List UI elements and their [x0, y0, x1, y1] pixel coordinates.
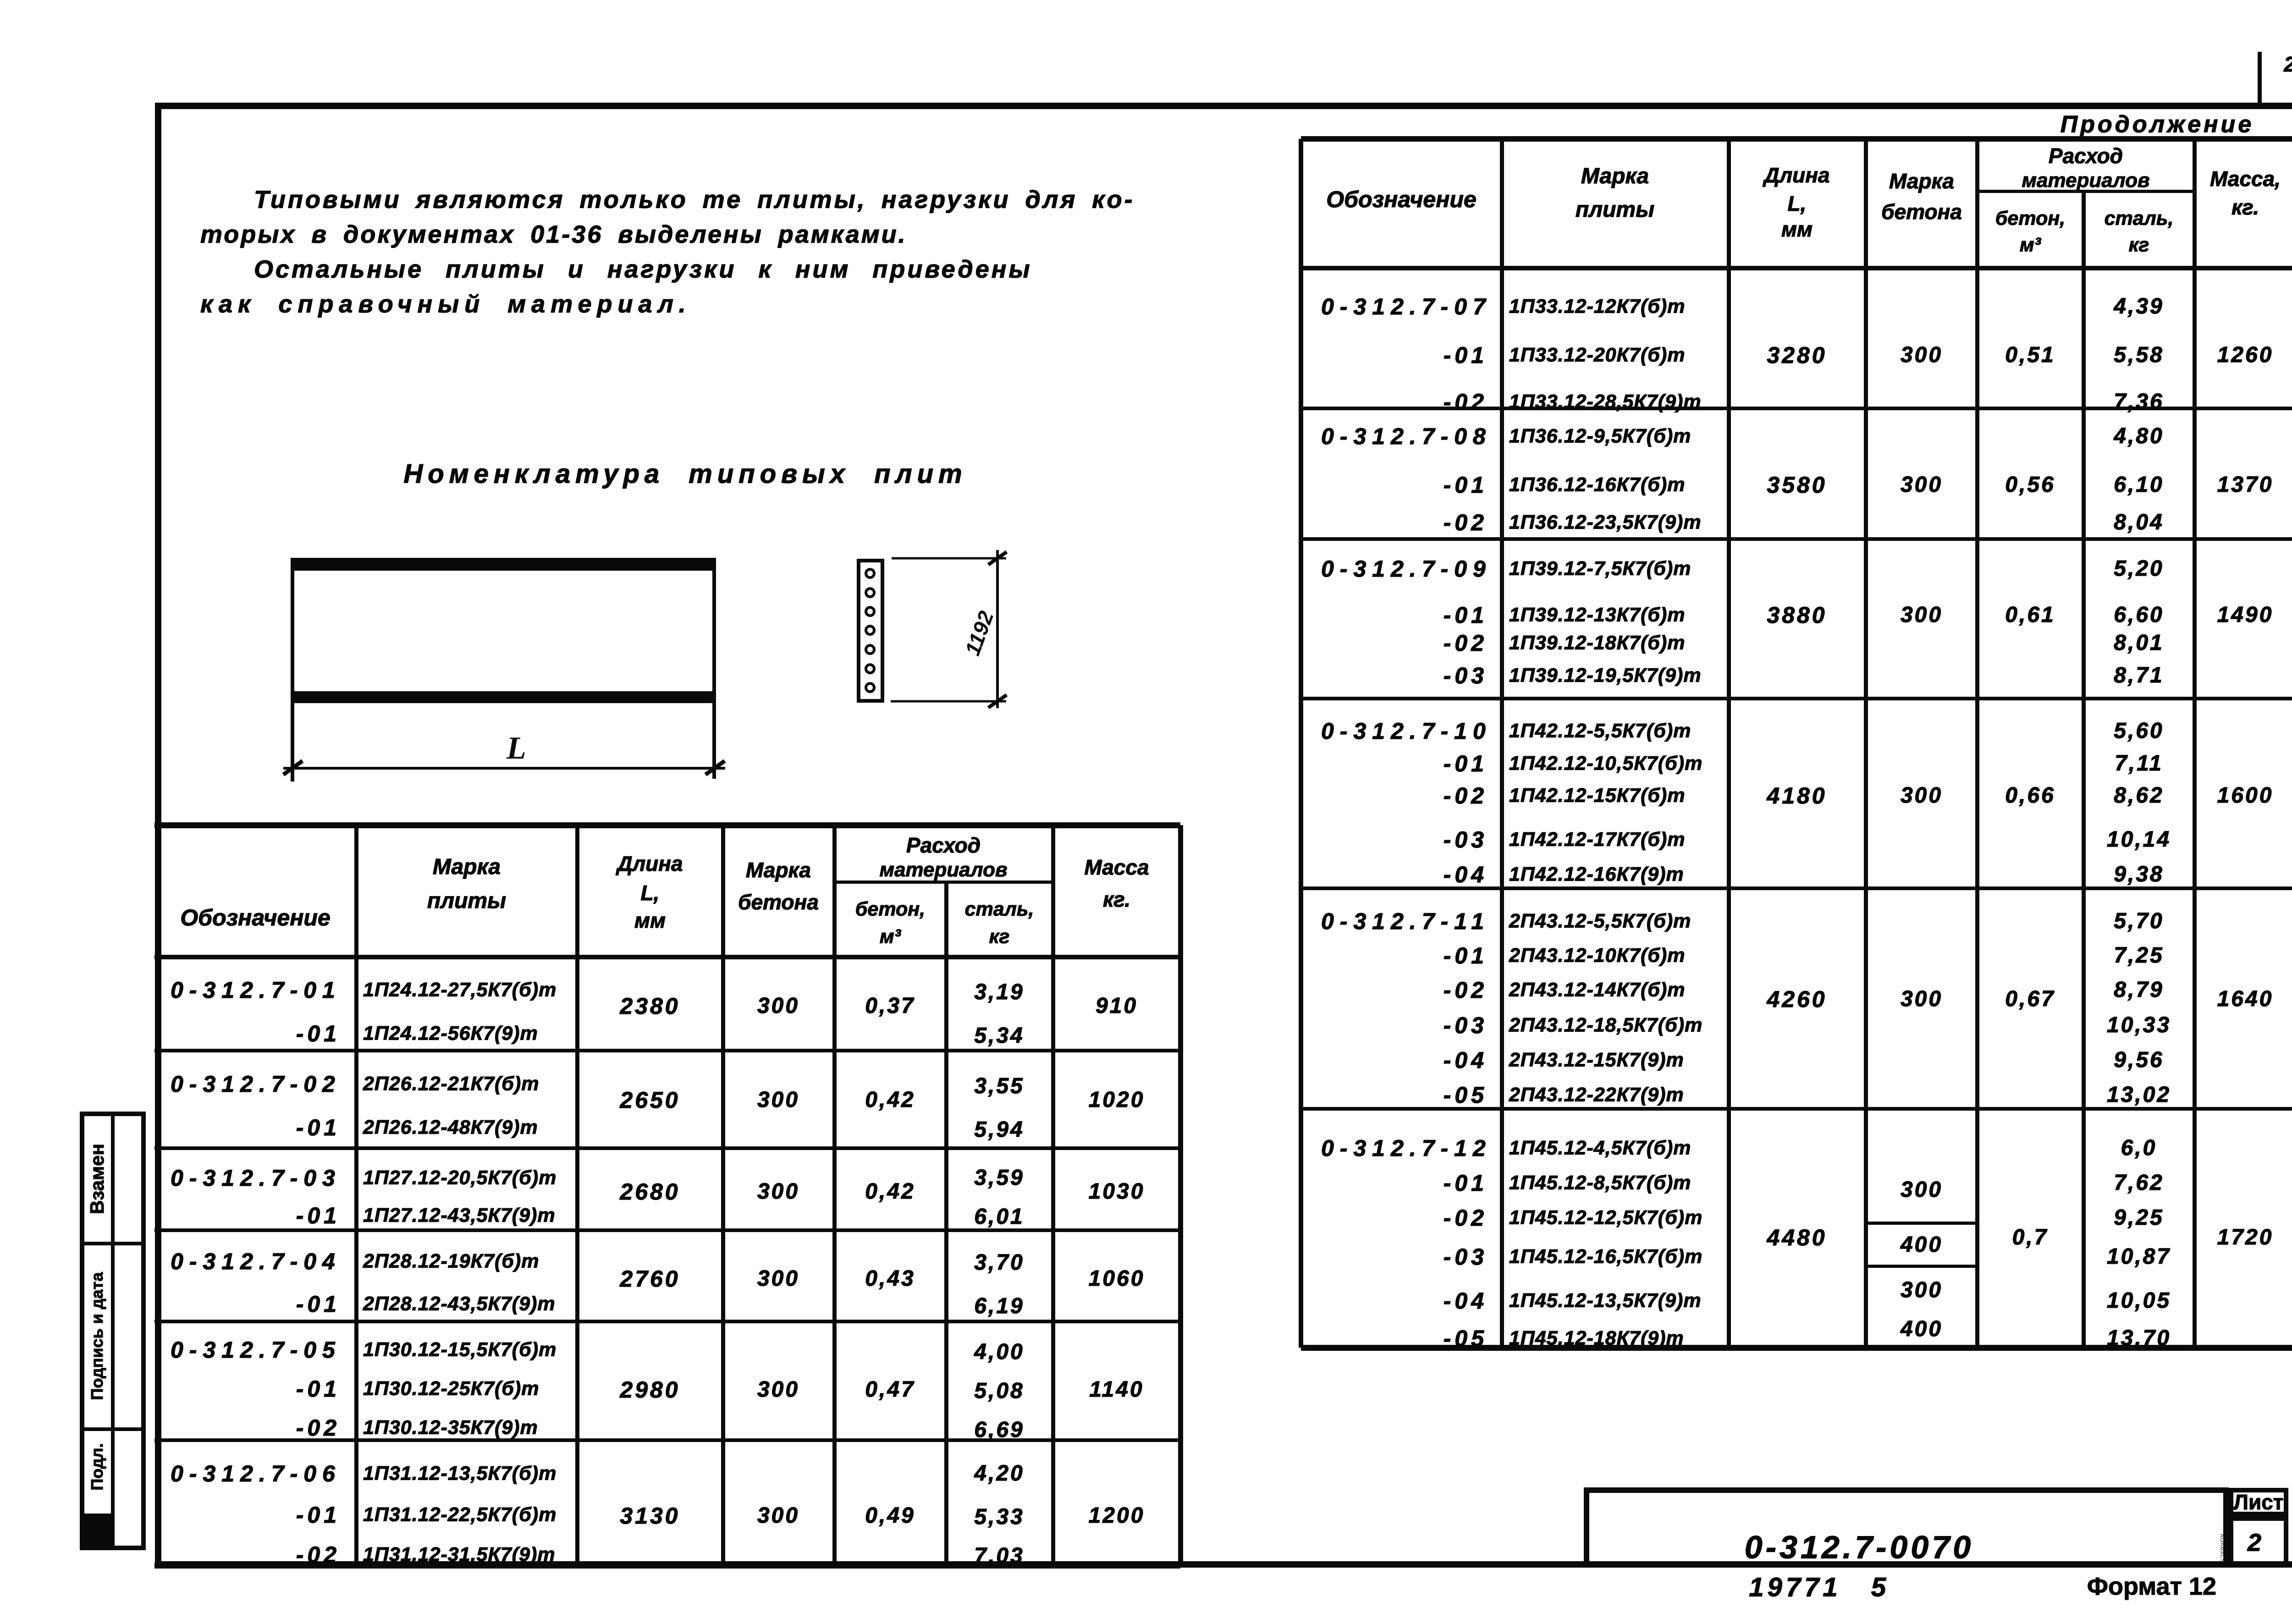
- svg-text:1192: 1192: [960, 608, 998, 659]
- svg-text:L: L: [506, 731, 526, 766]
